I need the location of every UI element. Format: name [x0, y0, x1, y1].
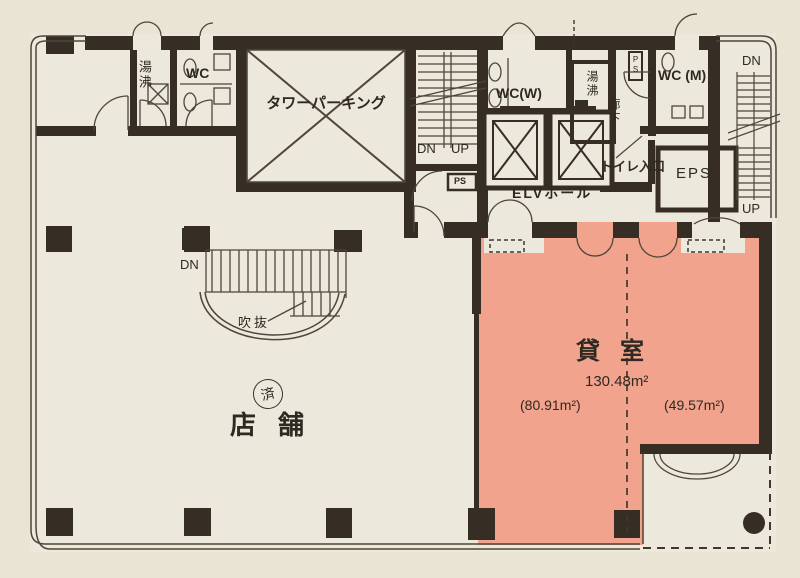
- stair-center-dn-label: DN: [417, 142, 436, 155]
- room-label-wc-m: WC (M): [658, 68, 706, 82]
- room-label-yuwakashi-mid: 湯沸: [586, 70, 598, 98]
- rental-area-total: 130.48m²: [585, 374, 648, 389]
- corridor-label: 廊下: [608, 98, 620, 126]
- room-label-wc-w: WC(W): [496, 86, 542, 100]
- round-column: [743, 512, 765, 534]
- stair-right-dn-label: DN: [742, 54, 761, 67]
- toilet-entrance-label: トイレ入口: [600, 160, 665, 173]
- stair-center-up-label: UP: [451, 142, 469, 155]
- rental-area-right: (49.57m²): [664, 398, 725, 412]
- room-label-tower-parking: タワーパーキング: [240, 96, 412, 111]
- rental-area-left: (80.91m²): [520, 398, 581, 412]
- stair-store-dn-label: DN: [180, 258, 199, 271]
- floor-plan-drawing: [0, 0, 800, 578]
- ps-box-label: PS: [454, 177, 466, 186]
- rental-room-label: 貸室: [576, 340, 664, 364]
- elevator-shafts: [484, 112, 612, 188]
- stair-right-up-label: UP: [742, 202, 760, 215]
- eps-label: EPS: [676, 166, 712, 181]
- elv-hall-label: ELVホール: [512, 186, 592, 200]
- room-label-yuwakashi-nw: 湯沸: [138, 60, 151, 90]
- floor-plan: 湯沸 WC タワーパーキング DN UP PS WC(W) 湯沸 廊下 PS W…: [0, 0, 800, 578]
- room-label-wc-nw: WC: [186, 66, 209, 80]
- atrium-label: 吹抜: [238, 316, 270, 329]
- store-label: 店舗: [230, 412, 326, 438]
- ps-shaft-label: PS: [631, 55, 639, 75]
